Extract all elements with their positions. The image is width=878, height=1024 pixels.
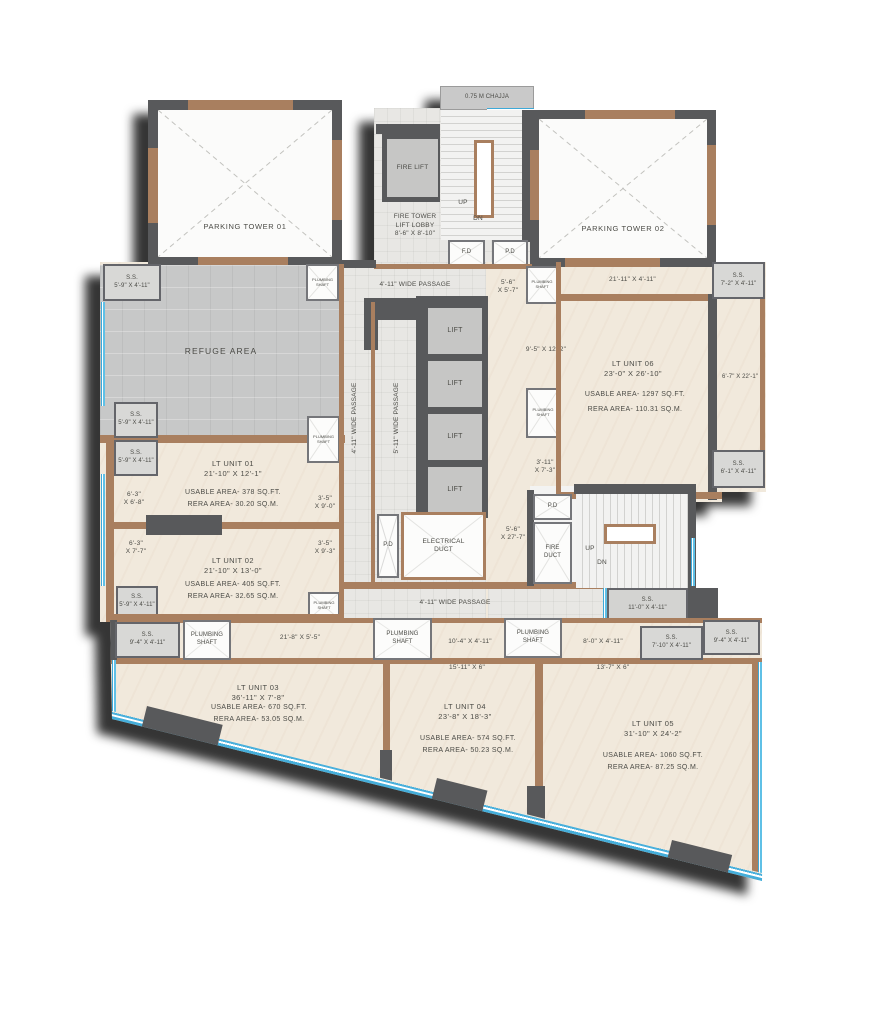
ss-box: S.S. 5'-9" X 4'-11" [114, 440, 158, 476]
electrical-duct-label: ELECTRICAL DUCT [404, 515, 483, 577]
parking-tower-01-label: PARKING TOWER 01 [175, 220, 315, 234]
wood-wall [106, 443, 114, 618]
wall [574, 484, 696, 494]
unit-02-usable-area: USABLE AREA- 405 SQ.FT. [168, 580, 298, 590]
lift-label: LIFT [428, 308, 482, 354]
glazing-edge [101, 302, 105, 406]
unit-04-rera-area: RERA AREA- 50.23 SQ.M. [398, 746, 538, 756]
unit-06-rera-area: RERA AREA- 110.31 SQ.M. [570, 405, 700, 415]
wood-wall [148, 148, 158, 223]
unit-06-title: LT UNIT 06 23'-0" X 26'-10" [570, 358, 696, 380]
ss-box: S.S. 5'-9" X 4'-11" [103, 264, 161, 301]
lift: LIFT [428, 361, 482, 407]
wood-wall [374, 264, 532, 269]
ss-box: S.S. 11'-0" X 4'-11" [607, 588, 688, 621]
floor-plan-canvas: 0.75 M CHAJJA PARKING TOWER 01 PARKING T… [0, 0, 878, 1024]
dim-label: 5'-6" X 5'-7" [493, 277, 523, 297]
tower-floor [158, 110, 332, 257]
parking-tower-01: PARKING TOWER 01 [148, 100, 342, 267]
ss-label: S.S. 9'-4" X 4'-11" [117, 624, 178, 656]
wood-wall [530, 150, 539, 220]
wood-wall [565, 258, 660, 267]
unit-06-usable-area: USABLE AREA- 1297 SQ.FT. [570, 390, 700, 400]
dim-label: 8'-0" X 4'-11" [567, 636, 639, 648]
unit-01-title: LT UNIT 01 21'-10" X 12'-1" [168, 458, 298, 480]
ss-box: S.S. 5'-9" X 4'-11" [114, 402, 158, 438]
ss-label: S.S. 11'-0" X 4'-11" [609, 590, 686, 619]
pd-duct: P.D [492, 240, 528, 266]
lift: LIFT [428, 467, 482, 513]
fire-duct-label: FIRE DUCT [535, 524, 570, 582]
cross-icon [539, 119, 707, 258]
wood-wall [332, 140, 342, 220]
fd-label: F.D [450, 242, 483, 264]
stairs-up-label: UP [578, 544, 602, 554]
ss-box: S.S. 7'-10" X 4'-11" [640, 626, 703, 660]
ss-box: S.S. 9'-4" X 4'-11" [115, 622, 180, 658]
parking-tower-02-label: PARKING TOWER 02 [553, 222, 693, 236]
parking-tower-02: PARKING TOWER 02 [530, 110, 716, 267]
lift-label: LIFT [428, 467, 482, 513]
dim-label: 9'-5" X 12'-2" [505, 344, 587, 356]
lift-label: LIFT [428, 361, 482, 407]
wood-wall [188, 100, 293, 110]
passage-label: 4'-11" WIDE PASSAGE [345, 279, 485, 291]
stairs-dn-label: DN [590, 558, 614, 568]
ss-box: S.S. 7'-2" X 4'-11" [712, 262, 765, 299]
plumbing-shaft-label: PLUMBING SHAFT [309, 418, 338, 461]
dim-label: 13'-7" X 6" [578, 662, 648, 674]
plumbing-shaft-label: PLUMBING SHAFT [528, 268, 556, 302]
unit-05-rera-area: RERA AREA- 87.25 SQ.M. [583, 763, 723, 773]
unit-01-rera-area: RERA AREA- 30.20 SQ.M. [168, 500, 298, 510]
fd-duct: F.D [448, 240, 485, 266]
lift-label: LIFT [428, 414, 482, 460]
dim-label: 5'-6" X 27'-7" [496, 524, 530, 544]
stair-landing-rail [604, 524, 656, 544]
unit-02-rera-area: RERA AREA- 32.65 SQ.M. [168, 592, 298, 602]
dim-label: 6'-3" X 6'-8" [118, 489, 150, 509]
ss-label: S.S. 5'-9" X 4'-11" [105, 266, 159, 299]
glazing-edge [758, 662, 762, 882]
ss-box: S.S. 6'-1" X 4'-11" [712, 450, 765, 488]
chajja-label: 0.75 M CHAJJA [441, 87, 533, 109]
passage-label: 4'-11" WIDE PASSAGE [385, 597, 525, 609]
fire-tower-lobby-label: FIRE TOWER LIFT LOBBY 8'-6" X 8'-10" [382, 206, 448, 246]
wood-wall [558, 294, 710, 301]
plumbing-shaft-box: PLUMBING SHAFT [183, 620, 231, 660]
wall [688, 588, 718, 622]
plumbing-shaft-box: PLUMBING SHAFT [526, 266, 558, 304]
dim-label: 3'-5" X 9'-3" [310, 538, 340, 558]
wood-wall [339, 264, 344, 620]
refuge-area-label: REFUGE AREA [151, 345, 291, 359]
glazing-edge [101, 474, 105, 586]
wood-wall [371, 302, 375, 584]
plumbing-shaft-label: PLUMBING SHAFT [185, 622, 229, 658]
dim-label: 21'-8" X 5'-5" [245, 632, 355, 644]
lift: LIFT [428, 414, 482, 460]
tower-floor [539, 119, 707, 258]
passage-label-vertical: 4'-11" WIDE PASSAGE [349, 363, 361, 473]
ss-label: S.S. 5'-9" X 4'-11" [116, 404, 156, 436]
pd-label: P.D [535, 496, 570, 518]
wall [146, 515, 222, 535]
dim-label: 21'-11" X 4'-11" [565, 274, 700, 286]
unit-05-usable-area: USABLE AREA- 1060 SQ.FT. [583, 751, 723, 761]
ss-label: S.S. 9'-4" X 4'-11" [705, 622, 758, 653]
unit-02-title: LT UNIT 02 21'-10" X 13'-0" [168, 555, 298, 577]
passage-label-vertical: 5'-11" WIDE PASSAGE [391, 363, 403, 473]
plumbing-shaft-label: PLUMBING SHAFT [375, 620, 430, 658]
pd-duct: P.D [533, 494, 572, 520]
south-wing: S.S. 9'-4" X 4'-11" PLUMBING SHAFT 21'-8… [95, 618, 767, 886]
fire-duct: FIRE DUCT [533, 522, 572, 584]
plumbing-shaft-label: PLUMBING SHAFT [528, 390, 558, 436]
electrical-duct: ELECTRICAL DUCT [401, 512, 486, 580]
dim-label: 10'-4" X 4'-11" [435, 636, 505, 648]
ss-label: S.S. 5'-9" X 4'-11" [116, 442, 156, 474]
wood-wall [585, 110, 675, 119]
wood-wall [760, 299, 765, 450]
stairs-dn-label: DN [466, 214, 490, 224]
plumbing-shaft-box: PLUMBING SHAFT [504, 618, 562, 658]
pd-duct: P.D [377, 514, 399, 578]
fire-lift-label: FIRE LIFT [387, 139, 438, 197]
pd-label: P.D [494, 242, 526, 264]
stairs-up-label: UP [451, 198, 475, 208]
plumbing-shaft-label: PLUMBING SHAFT [506, 620, 560, 656]
plumbing-shaft-label: PLUMBING SHAFT [308, 266, 337, 299]
dim-label: 6'-3" X 7'-7" [120, 538, 152, 558]
cross-icon [158, 110, 332, 257]
wall [342, 260, 376, 268]
ss-label: S.S. 7'-10" X 4'-11" [642, 628, 701, 658]
wall [376, 124, 440, 134]
dim-label: 3'-5" X 9'-0" [310, 493, 340, 513]
ss-label: S.S. 6'-1" X 4'-11" [714, 452, 763, 486]
wood-wall [707, 145, 716, 225]
ss-label: S.S. 5'-9" X 4'-11" [118, 588, 156, 616]
ss-box: S.S. 9'-4" X 4'-11" [703, 620, 760, 655]
pd-label: P.D [379, 516, 397, 576]
unit-04-title: LT UNIT 04 23'-8" X 18'-3" [395, 701, 535, 723]
unit-01-usable-area: USABLE AREA- 378 SQ.FT. [168, 488, 298, 498]
unit-04-usable-area: USABLE AREA- 574 SQ.FT. [398, 734, 538, 744]
unit-03-title: LT UNIT 03 36'-11" X 7'-8" [188, 682, 328, 704]
plumbing-shaft-box: PLUMBING SHAFT [526, 388, 560, 438]
dim-label: 6'-7" X 22'-1" [714, 372, 766, 384]
ss-label: S.S. 7'-2" X 4'-11" [714, 264, 763, 297]
dim-label: 15'-11" X 6" [432, 662, 502, 674]
plumbing-shaft-box: PLUMBING SHAFT [307, 416, 340, 463]
floor-plan: 0.75 M CHAJJA PARKING TOWER 01 PARKING T… [0, 0, 878, 1024]
glazing-edge [691, 538, 695, 586]
lift: LIFT [428, 308, 482, 354]
fire-lift: FIRE LIFT [382, 134, 440, 202]
unit-03-usable-area: USABLE AREA- 670 SQ.FT. [189, 703, 329, 713]
chajja-strip: 0.75 M CHAJJA [440, 86, 534, 110]
unit-05-title: LT UNIT 05 31'-10" X 24'-2" [583, 718, 723, 740]
wall [522, 110, 530, 242]
stair-landing-rail [474, 140, 494, 218]
plumbing-shaft-box: PLUMBING SHAFT [306, 264, 339, 301]
plumbing-shaft-box: PLUMBING SHAFT [373, 618, 432, 660]
